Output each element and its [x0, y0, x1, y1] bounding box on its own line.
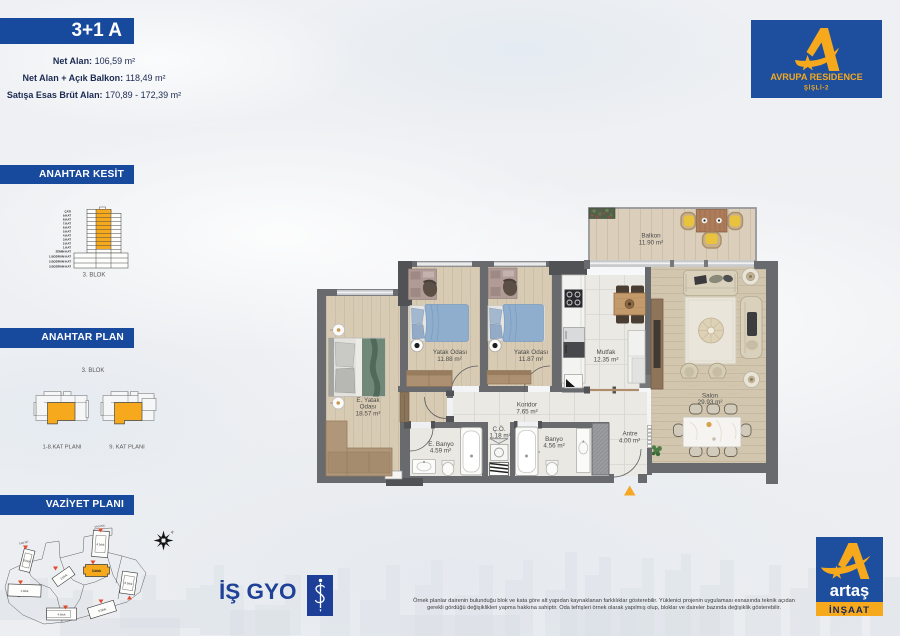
- svg-text:4.blok: 4.blok: [57, 613, 66, 617]
- svg-text:3. BLOK: 3. BLOK: [82, 368, 105, 374]
- svg-text:4.00 m²: 4.00 m²: [619, 438, 640, 445]
- svg-text:Yatak Odası: Yatak Odası: [433, 349, 467, 356]
- svg-text:1.BODRUM KAT: 1.BODRUM KAT: [49, 254, 71, 258]
- svg-text:1-8.KAT PLANI: 1-8.KAT PLANI: [42, 445, 81, 451]
- svg-text:4.56 m²: 4.56 m²: [543, 443, 564, 450]
- svg-text:11.88 m²: 11.88 m²: [437, 356, 461, 363]
- svg-text:4.59 m²: 4.59 m²: [430, 448, 451, 455]
- svg-text:Mutfak: Mutfak: [597, 349, 617, 356]
- svg-text:29.93 m²: 29.93 m²: [698, 399, 723, 406]
- svg-text:12.35 m²: 12.35 m²: [594, 357, 619, 364]
- svg-text:11.90 m²: 11.90 m²: [639, 240, 663, 247]
- svg-text:3. BLOK: 3. BLOK: [83, 273, 106, 279]
- svg-text:Koridor: Koridor: [517, 402, 537, 409]
- svg-text:artaş: artaş: [830, 582, 869, 600]
- svg-text:1.blok: 1.blok: [20, 589, 29, 593]
- svg-text:9. KAT PLANI: 9. KAT PLANI: [109, 445, 145, 451]
- svg-text:T.AD.SİT.: T.AD.SİT.: [18, 538, 30, 545]
- svg-text:1.18 m²: 1.18 m²: [489, 433, 510, 440]
- svg-text:Yatak Odası: Yatak Odası: [514, 349, 548, 356]
- svg-text:K: K: [170, 529, 176, 535]
- svg-text:3.blok: 3.blok: [92, 569, 101, 573]
- svg-text:AVRUPA RESIDENCE: AVRUPA RESIDENCE: [770, 72, 862, 82]
- svg-text:ZEMİN KAT: ZEMİN KAT: [55, 249, 71, 253]
- svg-text:Balkon: Balkon: [641, 233, 661, 240]
- svg-text:ŞİŞLİ-2: ŞİŞLİ-2: [804, 85, 829, 92]
- svg-text:Antre: Antre: [622, 431, 638, 438]
- svg-text:7.65 m²: 7.65 m²: [516, 409, 537, 416]
- svg-text:2.BODRUM KAT: 2.BODRUM KAT: [49, 259, 71, 263]
- svg-text:3.BODRUM KAT: 3.BODRUM KAT: [49, 264, 71, 268]
- svg-text:VAD.İNŞ.: VAD.İNŞ.: [94, 522, 106, 529]
- svg-text:11.87 m²: 11.87 m²: [519, 356, 543, 363]
- svg-text:4.blok: 4.blok: [96, 542, 105, 547]
- svg-text:18.57 m²: 18.57 m²: [356, 411, 381, 418]
- svg-text:İNŞAAT: İNŞAAT: [829, 605, 870, 616]
- svg-text:Odası: Odası: [360, 404, 377, 411]
